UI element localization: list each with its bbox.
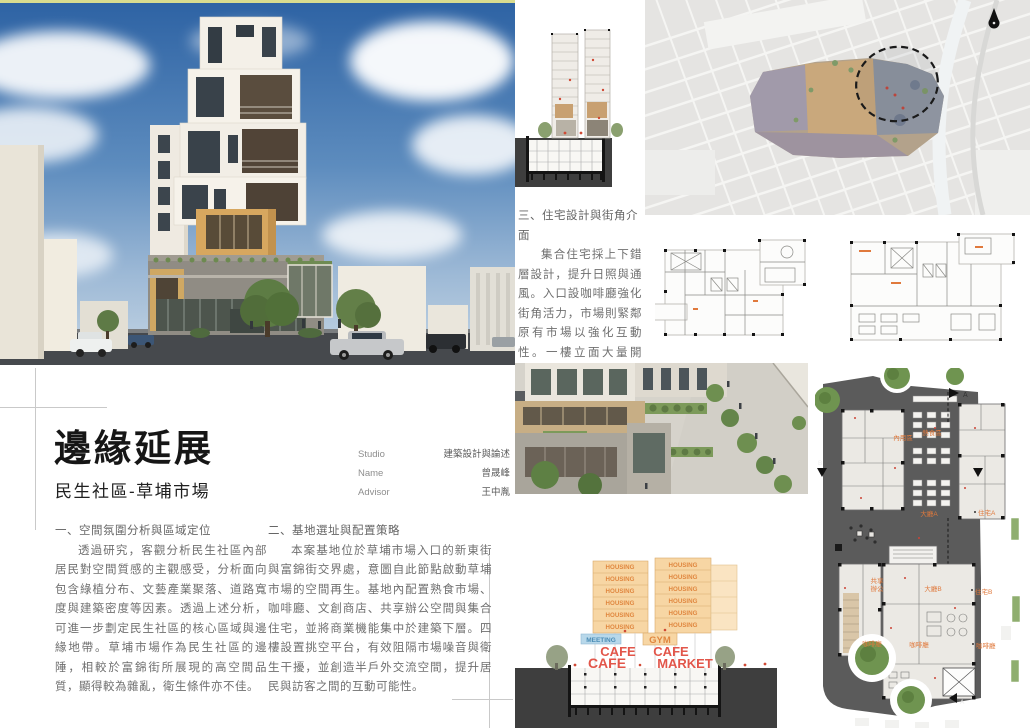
label-coworking-1: 共享: [871, 576, 885, 585]
presentation-board: 邊緣延展 民生社區-草埔市場 Studio 建築設計與論述 Name 曾晟峰 A…: [0, 0, 1030, 728]
rule-horizontal-bottom: [452, 699, 513, 700]
context-map: [645, 0, 1030, 215]
credit-value: 建築設計與論述: [443, 445, 510, 464]
site-plan: A B B A 內用區 熱食區 大廳A 住宅A 共享 辦公: [815, 368, 1030, 728]
credit-value: 王中胤: [481, 483, 510, 502]
program-section-svg: HOUSING HOUSING HOUSING HOUSING HOUSING …: [515, 555, 810, 728]
label-dine-area: 內用區: [893, 433, 913, 442]
label-cafe-center: 咖啡廳: [909, 640, 929, 649]
section-one-body: 透過研究，客觀分析民生社區內部居民對空間質感的主觀感受，分析面向包含綠植分布、文…: [55, 542, 267, 698]
section-two-heading: 二、基地選址與配置策略: [268, 522, 492, 542]
retail-labels: CAFE CAFE CAFE MARKET: [588, 644, 713, 671]
housing-label: HOUSING: [606, 612, 635, 619]
floor-plan-b: [850, 233, 1015, 341]
housing-label: HOUSING: [669, 562, 698, 569]
section-drawing-top: [515, 0, 645, 196]
credits-block: Studio 建築設計與論述 Name 曾晟峰 Advisor 王中胤: [358, 445, 510, 502]
text-section-two: 二、基地選址與配置策略 本案基地位於草埔市場入口的新東街與富錦街交界處，意圖自此…: [268, 522, 492, 698]
rule-vertical-title: [35, 368, 36, 530]
floor-plans-svg: [655, 228, 1015, 358]
housing-label: HOUSING: [669, 598, 698, 605]
label-housing-a: 住宅A: [978, 508, 996, 517]
section-letter: B: [818, 460, 822, 467]
label-hot-food: 熱食區: [922, 428, 942, 437]
text-section-one: 一、空間氛圍分析與區域定位 透過研究，客觀分析民生社區內部居民對空間質感的主觀感…: [55, 522, 267, 698]
meeting-label: MEETING: [586, 637, 616, 644]
section-drawing-top-svg: [515, 0, 645, 196]
credit-label: Studio: [358, 445, 385, 464]
housing-label: HOUSING: [606, 624, 635, 631]
aerial-rendering: [515, 363, 808, 494]
label-lobby-b: 大廳B: [924, 584, 941, 593]
section-three-heading: 三、住宅設計與街角介面: [518, 207, 642, 246]
label-coworking-2: 辦公: [871, 584, 885, 593]
cafe-label: CAFE: [588, 655, 626, 671]
market-label: MARKET: [657, 656, 713, 671]
section-letter: B: [974, 460, 978, 467]
label-lobby-a: 大廳A: [920, 509, 938, 518]
housing-label: HOUSING: [669, 586, 698, 593]
credit-row-name: Name 曾晟峰: [358, 464, 510, 483]
housing-tower-left: HOUSING HOUSING HOUSING HOUSING HOUSING …: [593, 561, 648, 633]
page-subtitle: 民生社區-草埔市場: [55, 477, 210, 502]
credit-label: Name: [358, 464, 383, 483]
label-housing-b: 住宅B: [975, 587, 992, 596]
housing-label: HOUSING: [606, 588, 635, 595]
housing-label: HOUSING: [669, 574, 698, 581]
building-upper-left: [841, 409, 905, 511]
tower-right: [585, 30, 610, 138]
floor-plan-a: [655, 239, 806, 336]
credit-row-advisor: Advisor 王中胤: [358, 483, 510, 502]
hero-rendering-svg: [0, 3, 515, 365]
section-letter: A: [960, 699, 965, 706]
credit-row-studio: Studio 建築設計與論述: [358, 445, 510, 464]
program-section-drawing: HOUSING HOUSING HOUSING HOUSING HOUSING …: [515, 555, 810, 728]
label-cafe-left: 咖啡廳: [862, 639, 882, 648]
housing-label: HOUSING: [606, 564, 635, 571]
housing-tower-right: HOUSING HOUSING HOUSING HOUSING HOUSING …: [655, 558, 711, 633]
credit-label: Advisor: [358, 483, 390, 502]
tower-left: [552, 34, 578, 138]
housing-label: HOUSING: [606, 576, 635, 583]
credit-value: 曾晟峰: [481, 464, 510, 483]
aerial-rendering-svg: [515, 363, 808, 494]
section-one-heading: 一、空間氛圍分析與區域定位: [55, 522, 267, 542]
context-map-svg: [645, 0, 1030, 215]
page-title: 邊緣延展: [54, 418, 214, 472]
rule-horizontal-title: [0, 407, 107, 408]
hero-rendering: [0, 3, 515, 365]
site-plan-svg: A B B A 內用區 熱食區 大廳A 住宅A 共享 辦公: [815, 368, 1030, 728]
housing-label: HOUSING: [606, 600, 635, 607]
floor-plans: [655, 228, 1015, 358]
section-two-body: 本案基地位於草埔市場入口的新東街與富錦街交界處，意圖自此節點啟動草埔市場的空間再…: [268, 542, 492, 698]
building-lower-center: [882, 546, 976, 700]
section-letter: A: [963, 392, 968, 399]
label-cafe-right: 咖啡廳: [976, 641, 996, 650]
housing-label: HOUSING: [669, 622, 698, 629]
housing-label: HOUSING: [669, 610, 698, 617]
